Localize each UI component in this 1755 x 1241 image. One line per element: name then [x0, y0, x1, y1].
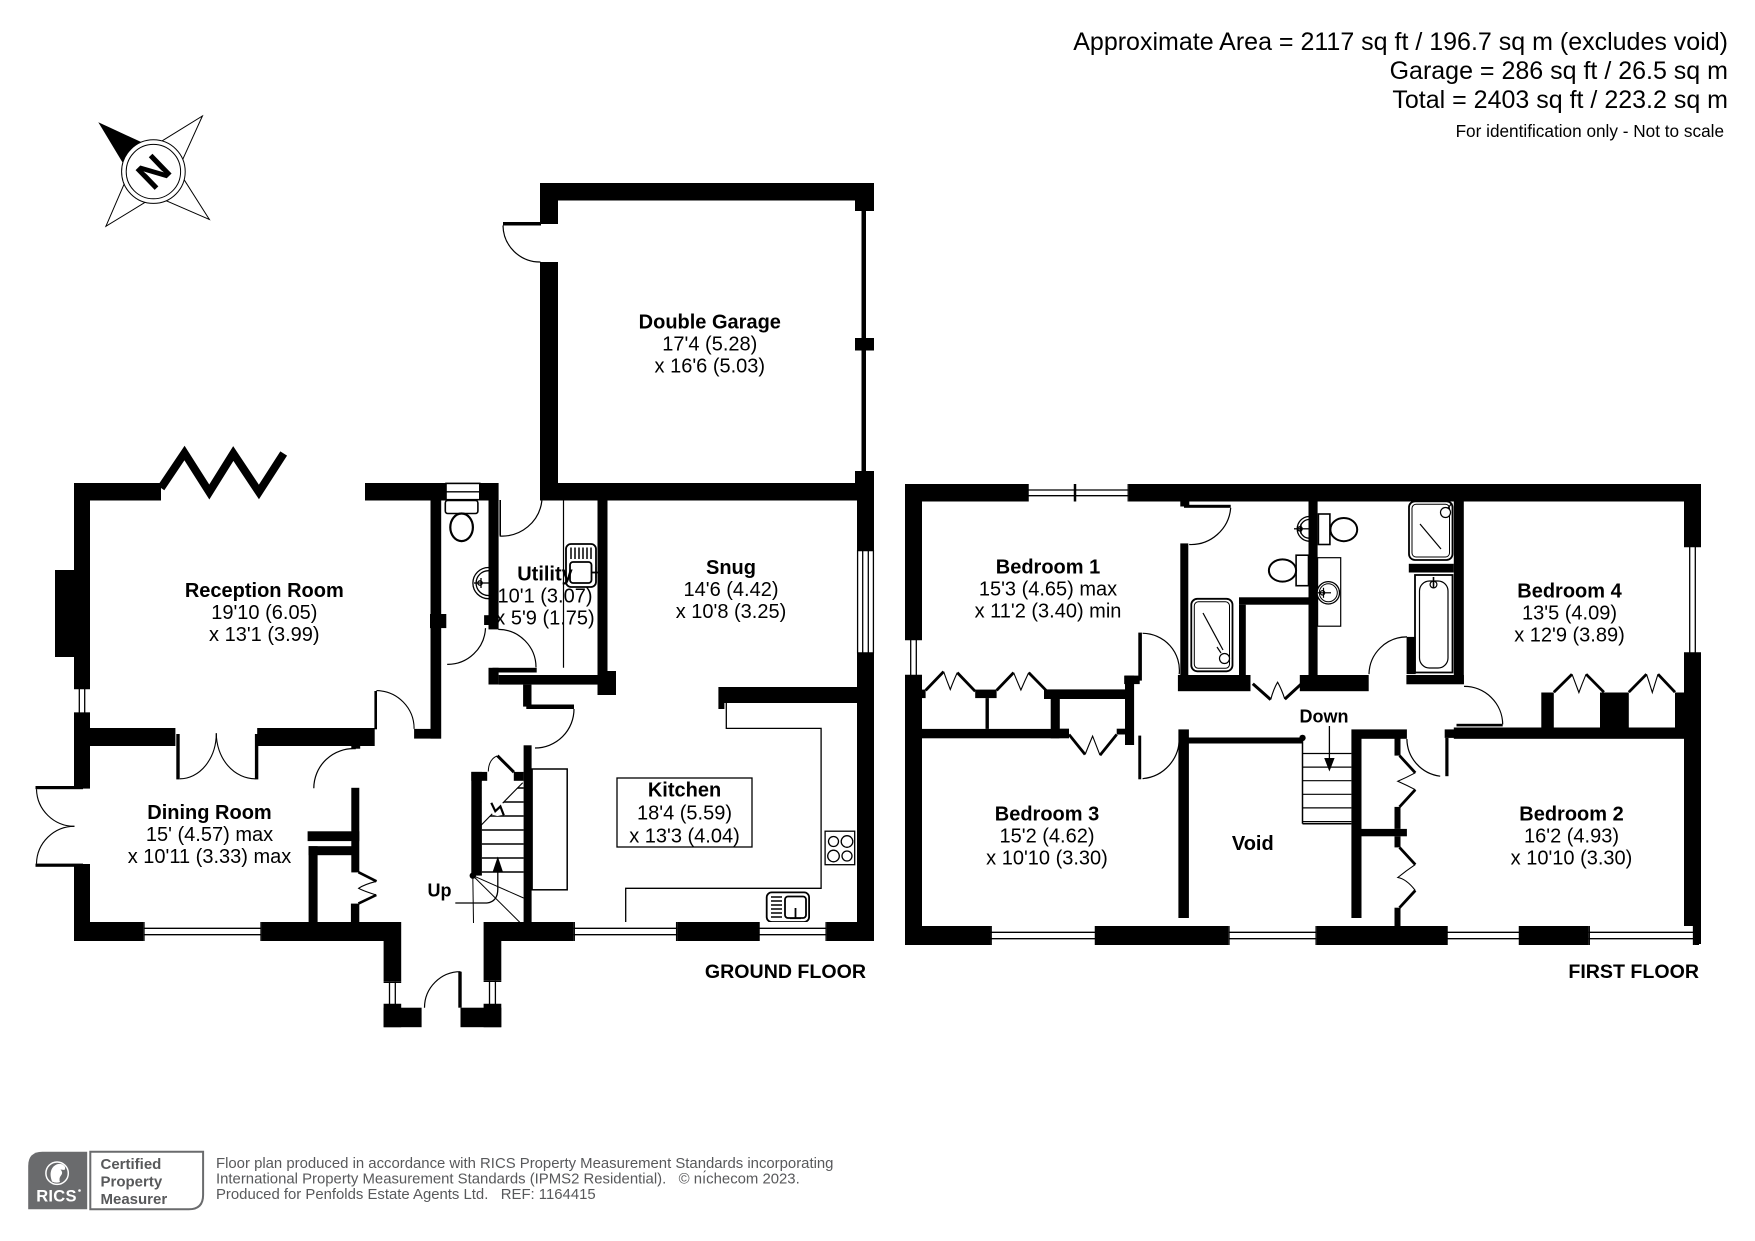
svg-text:Approximate Area = 2117 sq ft: Approximate Area = 2117 sq ft / 196.7 sq…: [1073, 28, 1728, 56]
svg-text:Produced for Penfolds Estate A: Produced for Penfolds Estate Agents Ltd.…: [216, 1187, 596, 1203]
svg-text:Up: Up: [428, 880, 452, 900]
svg-text:Bedroom 2: Bedroom 2: [1519, 803, 1623, 825]
svg-text:Bedroom 3: Bedroom 3: [995, 803, 1099, 825]
svg-text:GROUND FLOOR: GROUND FLOOR: [705, 961, 866, 983]
svg-text:16'2 (4.93): 16'2 (4.93): [1524, 825, 1619, 847]
svg-text:19'10 (6.05): 19'10 (6.05): [211, 602, 317, 624]
svg-text:Bedroom 1: Bedroom 1: [996, 557, 1100, 579]
svg-text:Certified: Certified: [101, 1156, 162, 1173]
svg-text:FIRST FLOOR: FIRST FLOOR: [1568, 961, 1699, 983]
svg-text:14'6 (4.42): 14'6 (4.42): [684, 579, 779, 601]
svg-text:15' (4.57) max: 15' (4.57) max: [146, 824, 273, 846]
svg-text:Measurer: Measurer: [101, 1191, 168, 1208]
svg-text:Bedroom 4: Bedroom 4: [1517, 581, 1622, 603]
svg-text:Snug: Snug: [706, 557, 756, 579]
svg-text:RICS: RICS: [36, 1188, 77, 1206]
svg-text:15'2 (4.62): 15'2 (4.62): [1000, 825, 1095, 847]
svg-text:Property: Property: [101, 1173, 163, 1190]
svg-text:13'5 (4.09): 13'5 (4.09): [1522, 603, 1617, 625]
svg-text:Kitchen: Kitchen: [648, 780, 721, 802]
svg-text:x 10'8 (3.25): x 10'8 (3.25): [676, 601, 787, 623]
svg-text:Reception Room: Reception Room: [185, 580, 344, 602]
svg-text:Floor plan produced in accorda: Floor plan produced in accordance with R…: [216, 1156, 833, 1172]
svg-text:x 10'10 (3.30): x 10'10 (3.30): [986, 847, 1108, 869]
svg-text:International Property Measure: International Property Measurement Stand…: [216, 1171, 800, 1188]
svg-text:Void: Void: [1232, 833, 1274, 855]
svg-text:x 12'9 (3.89): x 12'9 (3.89): [1514, 625, 1625, 647]
svg-text:x 16'6 (5.03): x 16'6 (5.03): [655, 356, 766, 378]
svg-text:Garage = 286 sq ft / 26.5 sq m: Garage = 286 sq ft / 26.5 sq m: [1390, 57, 1728, 85]
svg-text:10'1 (3.07): 10'1 (3.07): [498, 586, 593, 608]
svg-text:x 10'11 (3.33) max: x 10'11 (3.33) max: [128, 846, 292, 868]
svg-text:x 11'2 (3.40) min: x 11'2 (3.40) min: [975, 601, 1122, 623]
svg-text:18'4 (5.59): 18'4 (5.59): [637, 803, 732, 825]
svg-text:x 13'3 (4.04): x 13'3 (4.04): [629, 826, 740, 848]
svg-text:Double Garage: Double Garage: [639, 312, 781, 334]
svg-text:15'3 (4.65) max: 15'3 (4.65) max: [979, 579, 1117, 601]
svg-text:x 5'9 (1.75): x 5'9 (1.75): [495, 608, 594, 630]
svg-text:Utility: Utility: [517, 564, 573, 586]
svg-text:x 13'1 (3.99): x 13'1 (3.99): [209, 624, 320, 646]
svg-text:Dining Room: Dining Room: [147, 802, 271, 824]
svg-text:Total = 2403 sq ft / 223.2 sq: Total = 2403 sq ft / 223.2 sq m: [1392, 86, 1728, 114]
svg-text:17'4 (5.28): 17'4 (5.28): [662, 334, 757, 356]
svg-text:For identification only - Not: For identification only - Not to scale: [1456, 121, 1724, 141]
svg-text:Down: Down: [1300, 707, 1349, 727]
svg-text:x 10'10 (3.30): x 10'10 (3.30): [1511, 847, 1633, 869]
